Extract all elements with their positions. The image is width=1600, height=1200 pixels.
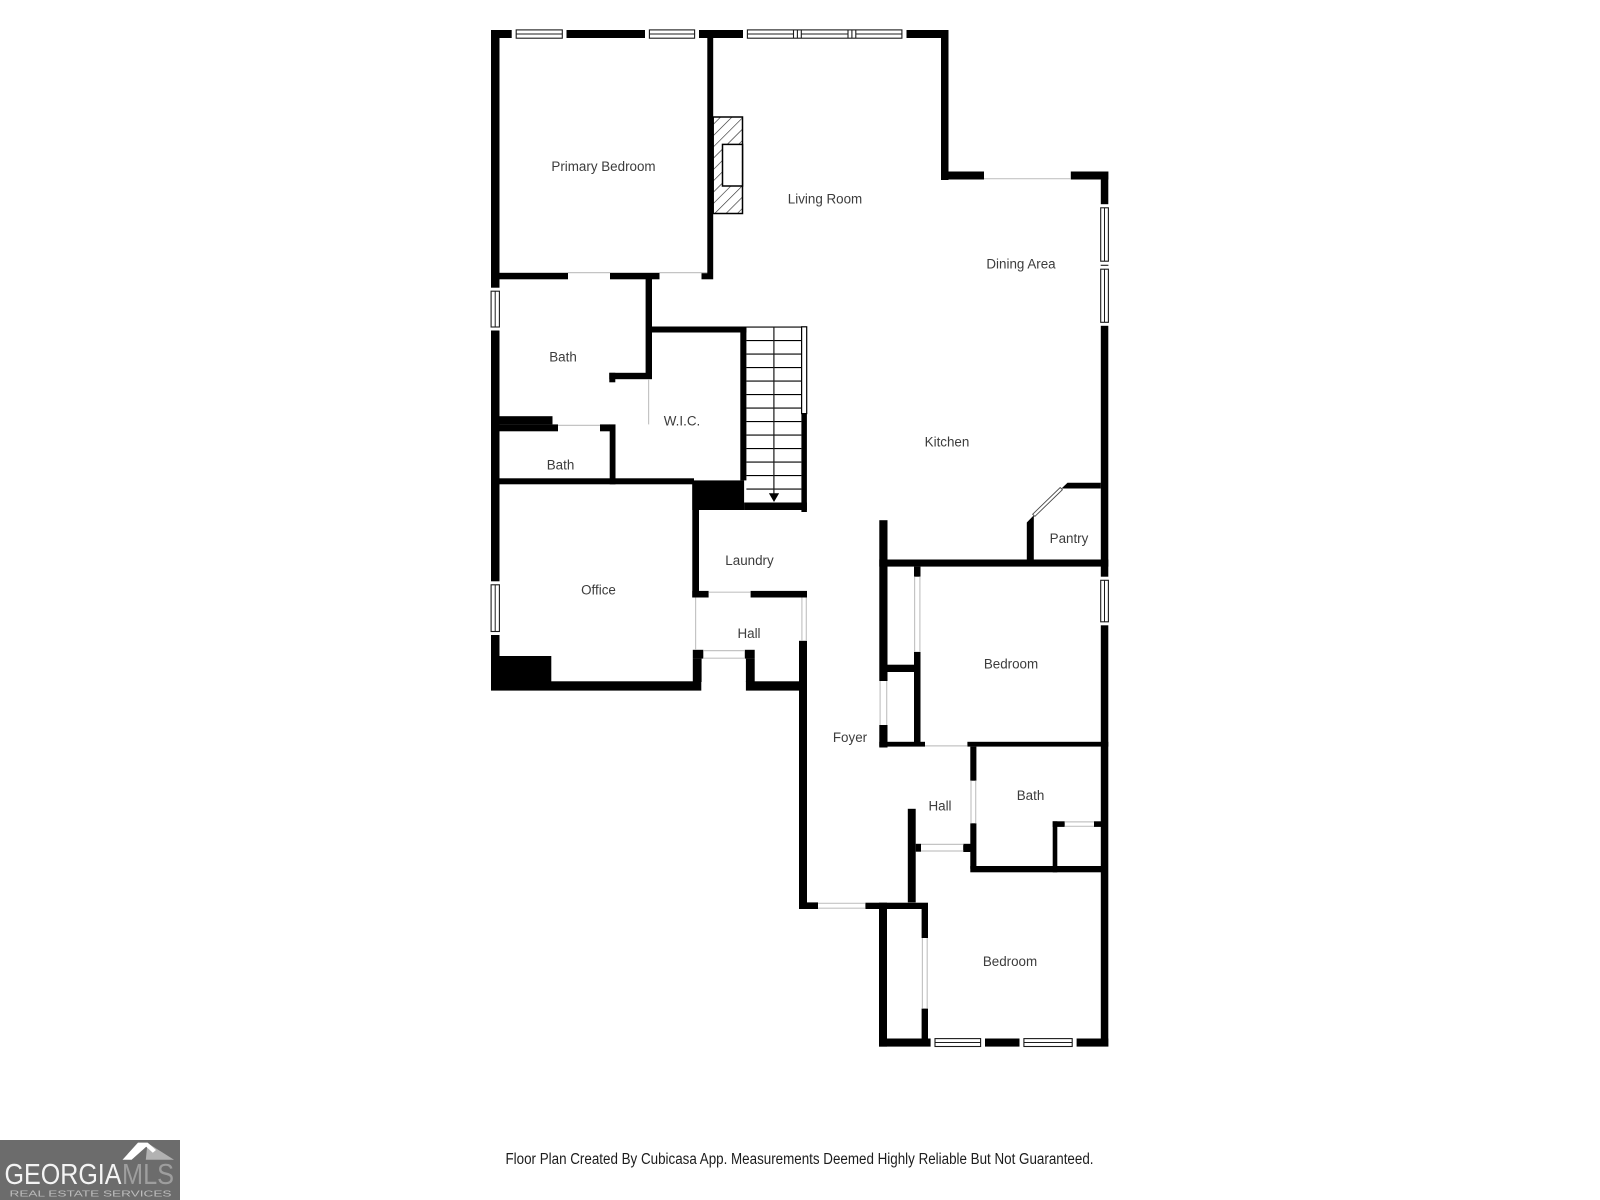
- svg-text:Bath: Bath: [549, 350, 577, 365]
- svg-text:Primary Bedroom: Primary Bedroom: [551, 159, 655, 174]
- svg-text:Bath: Bath: [547, 458, 575, 473]
- svg-text:Living Room: Living Room: [788, 192, 862, 207]
- svg-text:Bedroom: Bedroom: [983, 954, 1037, 969]
- svg-text:Foyer: Foyer: [833, 730, 868, 745]
- svg-text:W.I.C.: W.I.C.: [664, 414, 700, 429]
- svg-text:REAL ESTATE SERVICES: REAL ESTATE SERVICES: [10, 1190, 172, 1199]
- svg-text:Bath: Bath: [1017, 788, 1045, 803]
- svg-text:MLS: MLS: [122, 1159, 174, 1191]
- svg-text:Floor Plan Created By Cubicasa: Floor Plan Created By Cubicasa App. Meas…: [506, 1151, 1094, 1168]
- svg-text:Office: Office: [581, 583, 616, 598]
- svg-text:Laundry: Laundry: [725, 553, 774, 568]
- svg-text:Hall: Hall: [928, 799, 951, 814]
- svg-text:Pantry: Pantry: [1050, 531, 1089, 546]
- svg-text:Hall: Hall: [737, 626, 760, 641]
- svg-text:Kitchen: Kitchen: [925, 435, 970, 450]
- svg-text:Bedroom: Bedroom: [984, 656, 1038, 671]
- svg-text:Dining Area: Dining Area: [986, 257, 1056, 272]
- svg-text:GEORGIA: GEORGIA: [5, 1159, 122, 1191]
